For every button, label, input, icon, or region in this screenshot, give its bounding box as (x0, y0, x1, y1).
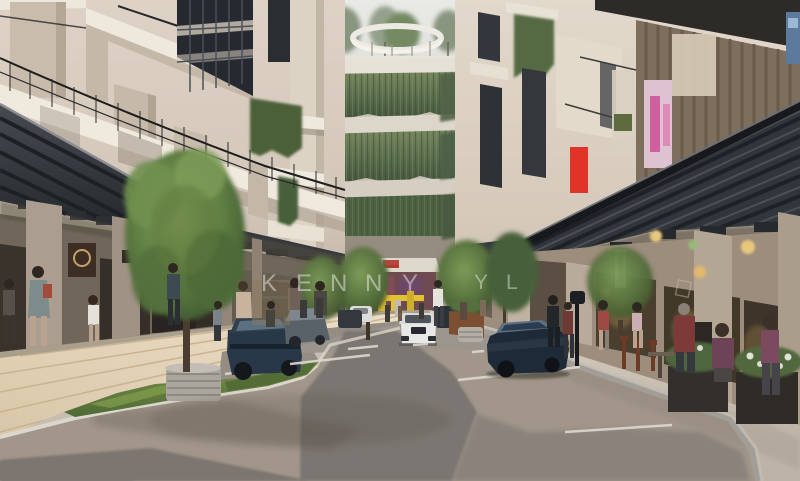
svg-text:L: L (506, 271, 518, 294)
svg-text:N: N (365, 270, 382, 297)
svg-text:E: E (296, 270, 312, 297)
svg-text:Y: Y (474, 271, 488, 294)
svg-text:N: N (330, 270, 347, 297)
svg-text:Y: Y (402, 270, 418, 297)
svg-text:K: K (261, 270, 277, 297)
